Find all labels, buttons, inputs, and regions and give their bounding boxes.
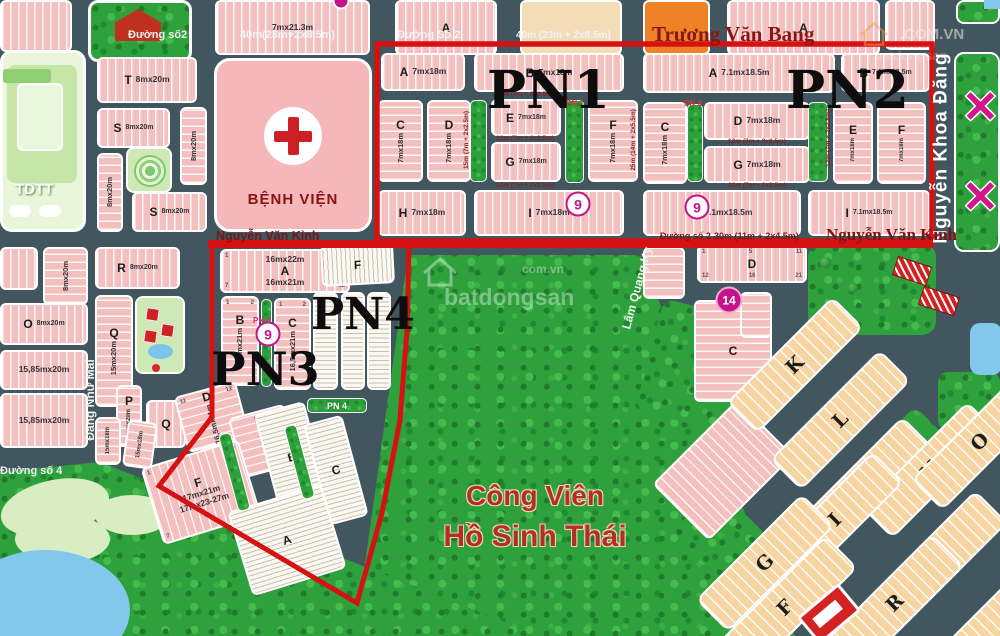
lot-number: 1 (226, 300, 229, 306)
map-block-a: A7mx18m (381, 53, 465, 91)
block-dim: 7mx18m (519, 158, 547, 166)
block-letter: A (709, 67, 718, 79)
map-block-a: A (395, 0, 497, 55)
map-block: 8mx20m (43, 247, 88, 305)
green-strip-right-edge: ✕ ✕ (954, 52, 1000, 252)
street-label: Đường Số 2 (397, 30, 460, 41)
number-badge: 9 (685, 195, 710, 220)
street-label: Đường số2 (128, 30, 187, 41)
block-letter: R (117, 262, 126, 274)
circular-garden-icon (134, 155, 166, 187)
region-label-pn1: PN1 (487, 66, 610, 115)
block-dim: 16mx21m (266, 278, 305, 287)
block-letter: T (124, 74, 131, 86)
block-letter: R (883, 591, 908, 616)
block-dim: 7.1mx18.5m (721, 68, 769, 77)
block-letter: O (23, 318, 32, 330)
street-label: 12m (7m + 2x2.5m) (728, 183, 786, 190)
block-letter: K (782, 352, 807, 377)
block-dim: 7mx18m (536, 208, 570, 217)
block-letter: F (774, 597, 797, 620)
block-dim: 8mx20m (37, 320, 65, 328)
map-block: 15mx18m (95, 417, 121, 465)
map-block: 8mx20m (97, 153, 123, 232)
map-block-t: T8mx20m (97, 57, 197, 103)
lot-number: 7 (225, 283, 228, 289)
tree-icon (820, 257, 831, 268)
block-dim: 7mx18m (746, 116, 780, 125)
street-label: 30m (11m + 2x4.5m) (714, 232, 799, 241)
green-strip (470, 100, 487, 182)
block-dim: 8mx20m (62, 261, 70, 291)
block-letter: C (729, 345, 738, 357)
block-letter: F (354, 258, 362, 270)
map-block-s: S8mx20m (132, 192, 207, 232)
map-block (520, 0, 622, 55)
pn-tag: PN 2 (684, 99, 702, 108)
hospital-block: BỆNH VIỆN (214, 58, 372, 232)
sports-center-block: TDTT (0, 50, 86, 232)
block-dim: 7mx18m (609, 133, 617, 163)
block-dim: 7mx18m (899, 138, 905, 162)
park-name: Công Viên Hồ Sinh Thái (400, 480, 670, 554)
block-dim: 7.1mx18.5m (704, 208, 752, 217)
red-building-icon (160, 323, 175, 338)
map-block-o: O8mx20m (0, 303, 88, 345)
map-block: 8mx20m (180, 107, 207, 185)
map-block-c: C7mx18m (378, 100, 423, 182)
map-block (0, 0, 72, 52)
block-letter: G (733, 159, 742, 171)
map-block: 15,85mx20m (0, 393, 88, 448)
mini-park-circular (126, 147, 172, 193)
block-dim: 15mx18m (135, 431, 145, 459)
street-label: 15m (7m + 2x2.5m) (464, 111, 471, 169)
street-label: Nguyễn Văn Kỉnh (216, 230, 319, 243)
block-letter: A (281, 265, 290, 277)
street-label: Trương Văn Bang (652, 24, 814, 45)
map-block (740, 292, 772, 338)
park-name-line2: Hồ Sinh Thái (400, 520, 670, 554)
block-dim: 8mx20m (125, 124, 153, 132)
street-label: Đường số 2 (660, 232, 711, 241)
block-dim: 8mx20m (190, 131, 198, 161)
map-block-s: S8mx20m (97, 108, 170, 148)
park-name-line1: Công Viên (400, 480, 670, 512)
lot-number: 12 (702, 273, 709, 279)
block-letter: G (505, 156, 514, 168)
map-block-h: H7mx18m (378, 190, 466, 236)
street-label: 12m (7m + 2x2.5m) (496, 136, 554, 143)
block-letter: I (528, 207, 531, 219)
block-letter: O (967, 429, 992, 454)
x-building-icon: ✕ (962, 86, 999, 130)
map-block-d: D1511121621 (697, 245, 807, 283)
region-label-pn3: PN3 (211, 348, 320, 392)
river-corner (984, 0, 1000, 9)
red-building-icon (143, 329, 158, 344)
map-block-g: G7mx18m (704, 146, 810, 183)
lot-number: 5 (749, 249, 752, 255)
block-letter: I (845, 207, 848, 219)
street-label: Đường số 4 (0, 466, 62, 477)
map-block: 7mx21.3m (215, 0, 370, 55)
lot-number: 2 (303, 302, 306, 308)
green-strip (687, 104, 703, 182)
block-letter: D (445, 119, 454, 131)
region-label-pn4: PN4 (311, 294, 415, 336)
street-label: 40m(23m+2x8,5m) (240, 30, 335, 41)
number-badge: 14 (716, 287, 743, 314)
block-letter: E (849, 124, 857, 136)
block-letter: D (748, 258, 757, 270)
block-letter: C (396, 119, 405, 131)
mini-park-pond (135, 296, 185, 374)
block-letter: C (288, 317, 297, 329)
hospital-label: BỆNH VIỆN (217, 191, 369, 208)
map-block: 15mx18m (122, 419, 158, 470)
strip-label: PN 4 (327, 401, 347, 411)
block-dim: 15,85mx20m (19, 365, 70, 374)
block-dim: 8mx20m (161, 208, 189, 216)
block-letter: G (753, 551, 778, 576)
street-label: 12m (7m + 2x2.5m) (496, 183, 554, 190)
street-label: 25m (14m + 2x5.5m) (631, 109, 638, 171)
map-block-h: H7.1mx18.5m (643, 190, 801, 236)
block-letter: C (330, 463, 341, 477)
lot-number: 1 (225, 253, 228, 259)
block-letter: P (125, 395, 133, 407)
block-dim: 8mx20m (106, 177, 114, 207)
block-letter: Q (161, 418, 170, 430)
block-dim: 15mx18m (105, 427, 111, 454)
map-block-g: G7mx18m (491, 142, 561, 182)
lot-number: 1 (702, 249, 705, 255)
block-dim: 7mx18m (445, 133, 453, 163)
street-label: Nguyễn Khoa Đăng (932, 52, 951, 243)
red-building-icon (918, 286, 960, 317)
block-dim: 7mx18m (411, 208, 445, 217)
block-letter: A (281, 533, 293, 547)
block-letter: Q (109, 327, 118, 339)
lake (970, 323, 1000, 375)
street-label: Đặng Như Mai (84, 359, 96, 440)
block-dim: 7mx18m (412, 67, 446, 76)
lot-number: 21 (795, 273, 802, 279)
street-label: 12m (7m + 2x2.5m) (728, 139, 786, 146)
block-letter: S (113, 122, 121, 134)
block-dim: 7mx18m (850, 138, 856, 162)
block-dim: 7.1mx18.5m (853, 209, 893, 217)
block-letter: F (609, 119, 616, 131)
map-block-f: F (320, 242, 395, 287)
block-dim: 15,85mx20m (19, 416, 70, 425)
block-dim: 7mx18m (747, 160, 781, 169)
map-block-r: R8mx20m (95, 247, 180, 289)
block-dim: 8mx20m (136, 75, 170, 84)
block-letter: S (149, 206, 157, 218)
site-plan-map: ✕ ✕ BỆNH VIỆN TDTT 7m (0, 0, 1000, 636)
x-building-icon: ✕ (962, 176, 999, 220)
green-strip: PN 4 (307, 398, 367, 413)
pond-icon (148, 344, 173, 359)
lot-number: 11 (796, 249, 802, 255)
map-block (885, 0, 935, 50)
flower-dot-icon (152, 364, 160, 372)
tree-icon (848, 283, 858, 293)
red-building-icon (892, 256, 932, 286)
block-letter: A (400, 66, 409, 78)
block-letter: D (734, 115, 743, 127)
sports-label: TDTT (15, 181, 53, 198)
number-badge: 9 (566, 192, 591, 217)
block-dim: 15mx20m (110, 341, 118, 375)
block-letter: L (829, 409, 852, 432)
map-block-i: I7mx18m (474, 190, 624, 236)
block-letter: B (236, 314, 245, 326)
lot-number: 2 (251, 300, 254, 306)
block-dim: 16mx22m (266, 255, 305, 264)
block-letter: H (399, 207, 408, 219)
block-dim: 7mx18m (397, 133, 405, 163)
block-letter: F (898, 124, 905, 136)
hospital-cross-icon (264, 107, 322, 165)
block-dim: 7mx18m (661, 135, 669, 165)
block-dim: 8mx20m (130, 264, 158, 272)
map-block: 15,85mx20m (0, 350, 88, 390)
map-block (0, 247, 38, 290)
red-building-icon (145, 307, 160, 322)
map-block-c: C7mx18m (643, 102, 687, 184)
lot-number: 16 (749, 273, 756, 279)
region-label-pn2: PN2 (786, 66, 909, 115)
block-letter: C (661, 121, 670, 133)
street-label: 40m (23m + 2x8.5m) (516, 31, 611, 41)
street-label: Nguyễn Văn Kỉnh (826, 226, 957, 243)
lot-number: 1 (279, 302, 282, 308)
